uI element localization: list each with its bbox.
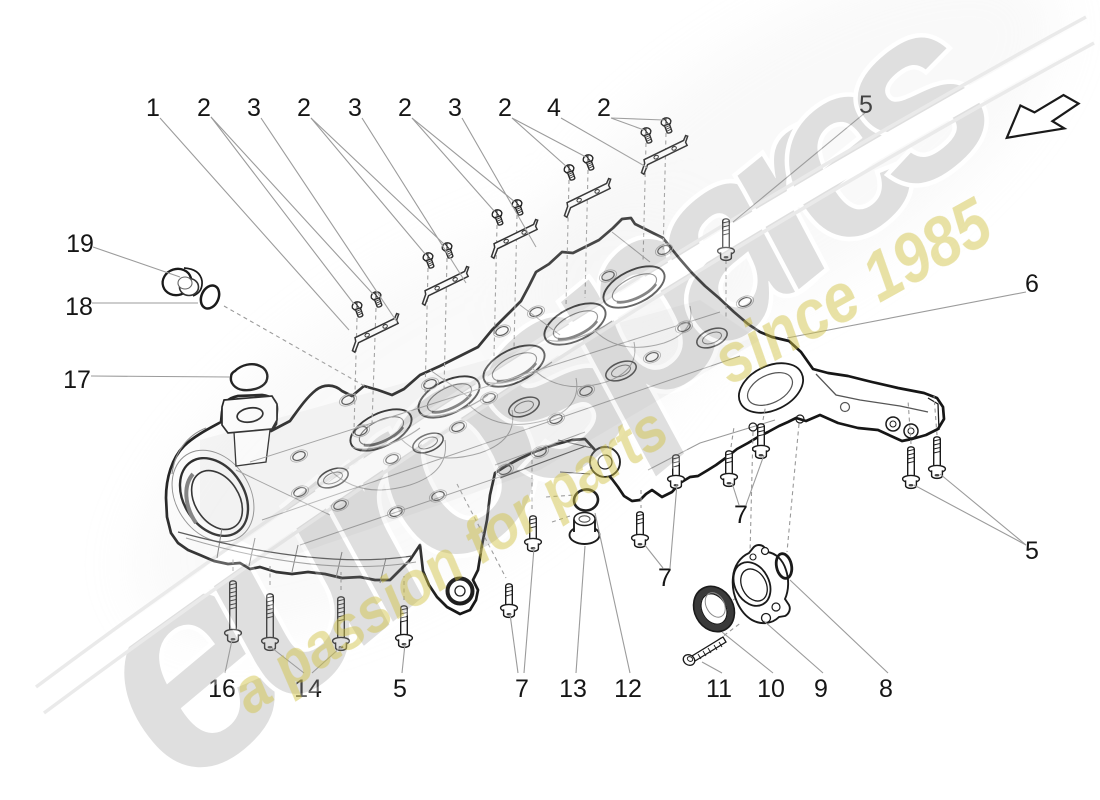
svg-text:2: 2 xyxy=(498,94,512,122)
svg-text:2: 2 xyxy=(297,94,311,122)
svg-text:7: 7 xyxy=(734,501,748,529)
svg-text:13: 13 xyxy=(559,675,587,703)
svg-text:3: 3 xyxy=(448,94,462,122)
svg-text:5: 5 xyxy=(1025,537,1039,565)
svg-text:17: 17 xyxy=(63,366,91,394)
svg-text:2: 2 xyxy=(597,94,611,122)
svg-text:6: 6 xyxy=(1025,270,1039,298)
svg-text:7: 7 xyxy=(515,675,529,703)
svg-text:8: 8 xyxy=(879,675,893,703)
svg-text:2: 2 xyxy=(398,94,412,122)
svg-text:1: 1 xyxy=(146,94,160,122)
svg-text:9: 9 xyxy=(814,675,828,703)
svg-text:7: 7 xyxy=(658,564,672,592)
svg-text:4: 4 xyxy=(547,94,561,122)
svg-text:12: 12 xyxy=(614,675,642,703)
svg-text:3: 3 xyxy=(348,94,362,122)
svg-text:11: 11 xyxy=(706,675,732,703)
svg-text:3: 3 xyxy=(247,94,261,122)
svg-text:19: 19 xyxy=(66,230,94,258)
svg-text:2: 2 xyxy=(197,94,211,122)
svg-text:10: 10 xyxy=(757,675,785,703)
svg-text:18: 18 xyxy=(65,293,93,321)
